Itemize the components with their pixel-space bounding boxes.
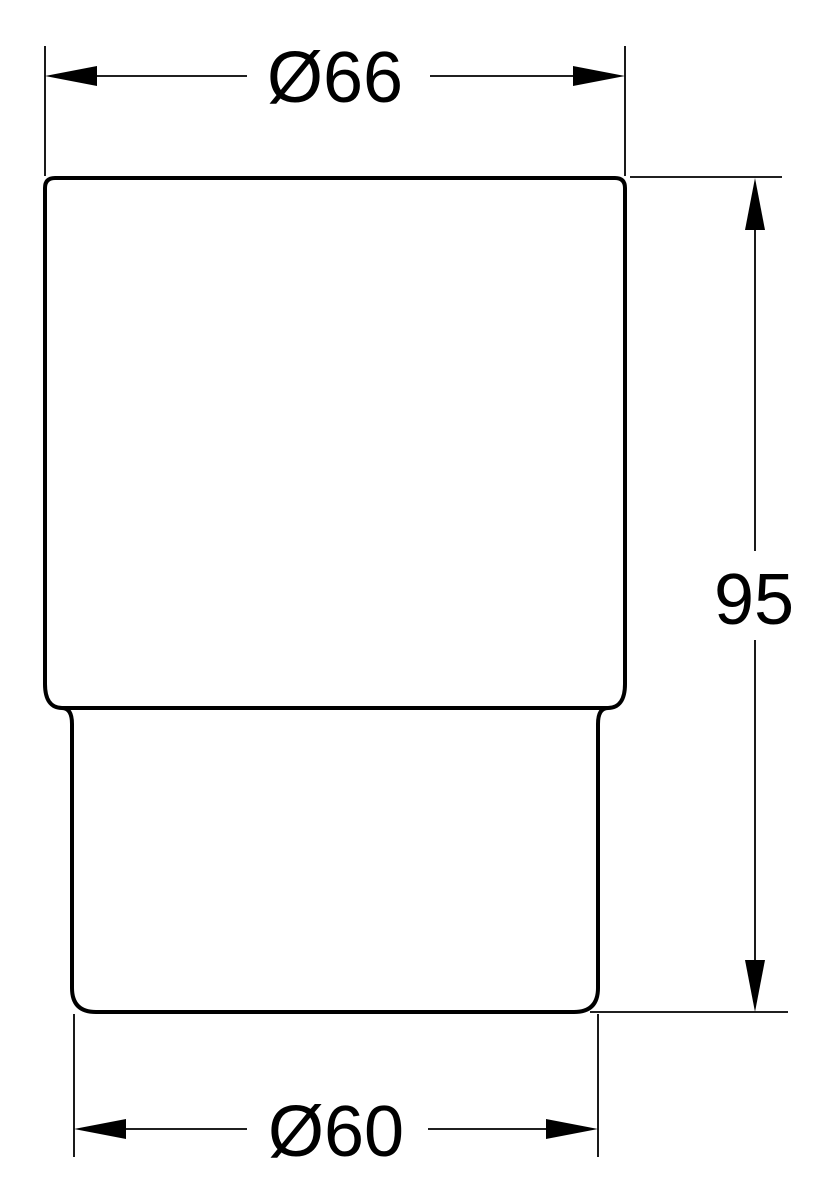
arrowhead-down-icon	[745, 960, 765, 1012]
technical-drawing-canvas: Ø66 95 Ø60	[0, 0, 840, 1200]
dimension-height: 95	[590, 177, 794, 1012]
arrowhead-left-icon	[45, 66, 97, 86]
tumbler-body-path	[45, 178, 625, 1012]
height-label: 95	[714, 560, 794, 640]
tumbler-outline	[45, 178, 625, 1012]
arrowhead-up-icon	[745, 178, 765, 230]
arrowhead-right-icon	[546, 1119, 598, 1139]
arrowhead-right-icon	[573, 66, 625, 86]
tumbler-dimension-drawing: Ø66 95 Ø60	[0, 0, 840, 1200]
top-diameter-label: Ø66	[267, 38, 403, 118]
bottom-diameter-label: Ø60	[268, 1092, 404, 1172]
arrowhead-left-icon	[74, 1119, 126, 1139]
dimension-bottom-diameter: Ø60	[74, 1014, 598, 1172]
dimension-top-diameter: Ø66	[45, 38, 625, 176]
